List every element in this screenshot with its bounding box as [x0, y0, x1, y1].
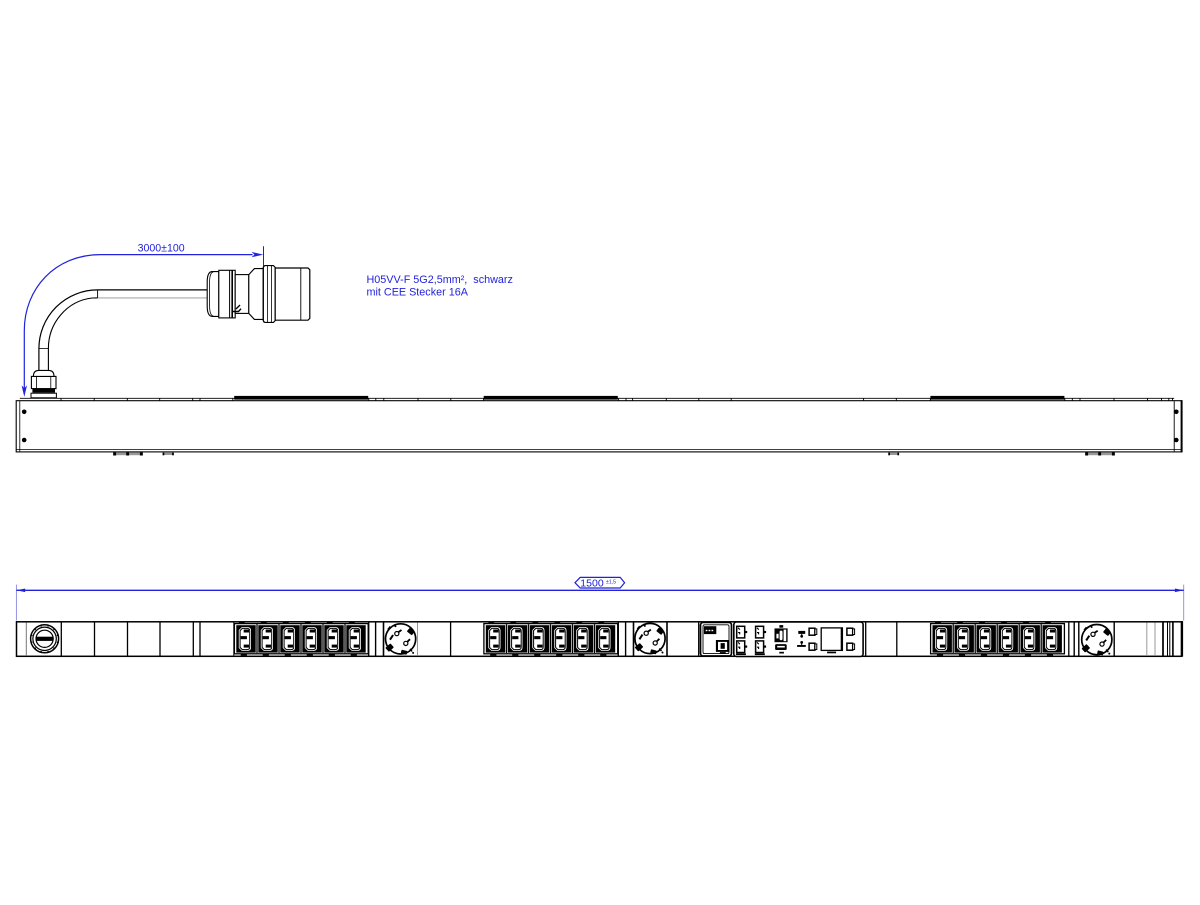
- svg-text:1500: 1500: [580, 577, 604, 589]
- svg-text:±1,5: ±1,5: [606, 579, 616, 585]
- svg-text:3000±100: 3000±100: [138, 242, 185, 254]
- svg-text:H05VV-F 5G2,5mm², schwarz: H05VV-F 5G2,5mm², schwarz: [367, 274, 513, 286]
- svg-text:mit CEE Stecker 16A: mit CEE Stecker 16A: [367, 287, 469, 299]
